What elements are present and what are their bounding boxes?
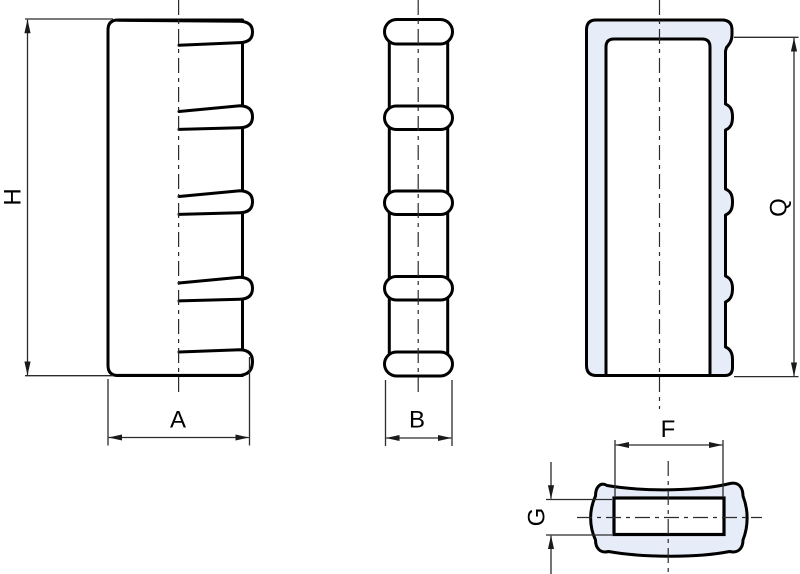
technical-drawing: H A B Q (0, 0, 800, 574)
label-B: B (409, 407, 425, 434)
section-inner-cavity (606, 39, 710, 376)
top-view (577, 461, 762, 572)
front-fin-4 (179, 277, 253, 301)
side-view (385, 0, 453, 397)
label-A: A (170, 407, 186, 434)
front-fin-3 (179, 191, 253, 215)
top-inner-opening (614, 498, 724, 535)
front-view (108, 0, 253, 394)
dimension-F: F (615, 416, 723, 497)
front-fin-2 (179, 106, 253, 130)
drawing-canvas: H A B Q (0, 0, 800, 574)
label-G: G (524, 508, 551, 527)
label-H: H (0, 188, 27, 205)
label-Q: Q (766, 198, 793, 217)
label-F: F (661, 416, 676, 443)
dimension-Q: Q (734, 37, 799, 376)
section-view (587, 0, 733, 409)
dimension-H: H (0, 19, 113, 376)
